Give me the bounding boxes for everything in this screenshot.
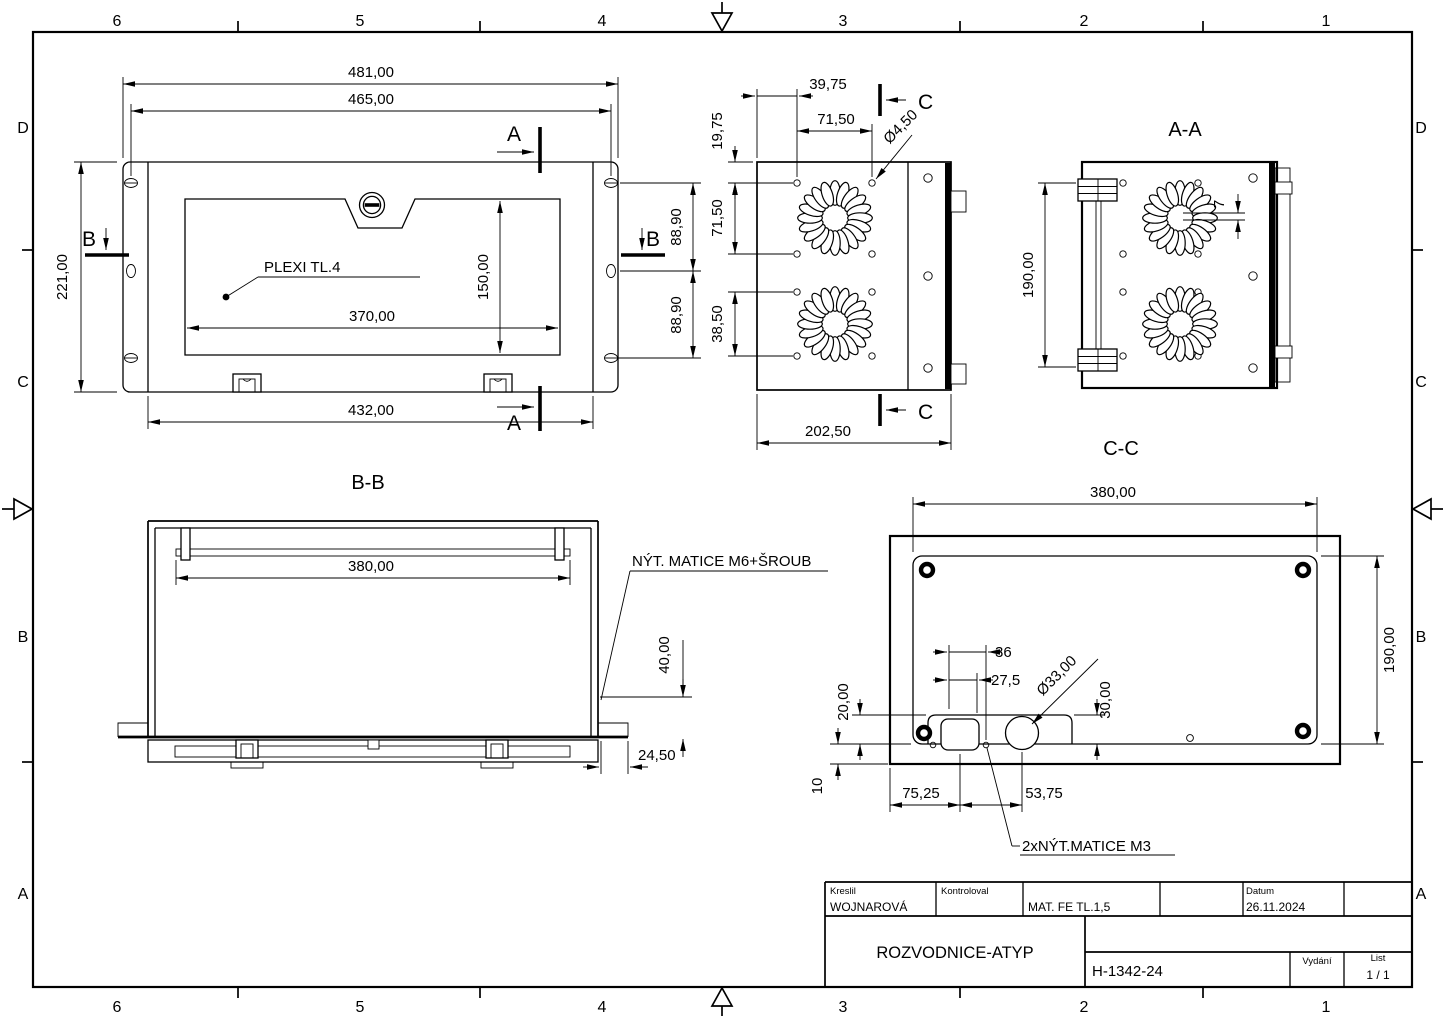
m3-rivet-hole	[983, 742, 989, 748]
cam-lock-icon	[360, 193, 385, 218]
list-label: List	[1371, 953, 1386, 964]
dim-front-body-width: 432,00	[148, 396, 593, 429]
svg-text:30,00: 30,00	[1097, 681, 1114, 719]
din-rail-top	[1078, 179, 1117, 201]
vydani-label: Vydání	[1302, 956, 1332, 967]
svg-text:71,50: 71,50	[817, 111, 855, 128]
dim-side-top-offset: 19,75	[709, 112, 793, 199]
dim-side-hole-span-h: 71,50	[797, 111, 872, 177]
section-mark-a-bottom: A	[497, 386, 540, 435]
svg-text:24,50: 24,50	[638, 747, 676, 764]
center-marker-right	[1413, 499, 1443, 519]
zone-bottom-6: 6	[113, 999, 122, 1016]
section-mark-c-bottom: C	[880, 394, 933, 426]
section-aa-view: A-A 190,00 7	[1020, 119, 1292, 388]
svg-text:190,00: 190,00	[1020, 252, 1037, 298]
svg-text:190,00: 190,00	[1381, 627, 1398, 673]
zone-right-d: D	[1415, 120, 1427, 137]
dim-cc-7525: 75,25	[890, 754, 960, 812]
dim-bb-rail-width: 380,00	[176, 558, 570, 585]
latch-clip	[484, 374, 512, 392]
datum-label: Datum	[1246, 886, 1274, 897]
drawing-title: ROZVODNICE-ATYP	[876, 944, 1033, 962]
dim-aa-height: 190,00	[1020, 183, 1076, 367]
zone-top-3: 3	[839, 13, 848, 30]
list-value: 1 / 1	[1366, 968, 1390, 982]
zone-left-a: A	[18, 886, 29, 903]
svg-text:Ø33,00: Ø33,00	[1033, 652, 1080, 699]
zone-right-a: A	[1416, 886, 1427, 903]
svg-text:C: C	[918, 401, 933, 424]
zone-top-2: 2	[1080, 13, 1089, 30]
svg-text:40,00: 40,00	[656, 636, 673, 674]
latch-clip	[233, 374, 261, 392]
dim-bb-rivet-height: 40,00	[600, 636, 692, 757]
svg-text:27,5: 27,5	[991, 672, 1020, 689]
kreslil-value: WOJNAROVÁ	[830, 899, 907, 914]
section-cc-view: C-C 380,00 190,00 36 27,5 20,00	[809, 438, 1398, 855]
latch-clip	[236, 740, 258, 758]
dim-side-hole-span-v: 71,50	[709, 183, 793, 254]
dim-window-height: 150,00	[475, 201, 500, 353]
section-aa-title: A-A	[1168, 119, 1202, 141]
section-mark-b-left: B	[82, 228, 129, 255]
dim-cc-30: 30,00	[1074, 681, 1114, 760]
datum-value: 26.11.2024	[1246, 900, 1305, 914]
svg-text:2xNÝT.MATICE M3: 2xNÝT.MATICE M3	[1022, 838, 1151, 855]
section-bb-view: B-B 380,00 NÝT. MATICE M6+ŠROUB 40,00 24…	[118, 472, 828, 774]
drawing-svg: 6 5 4 3 2 1 6 5 4 3 2 1 D C B A D C B A	[0, 0, 1445, 1018]
dim-side-lower-span: 38,50	[709, 292, 793, 356]
svg-text:Ø4,50: Ø4,50	[880, 106, 921, 147]
zone-left-c: C	[17, 374, 29, 391]
svg-text:481,00: 481,00	[348, 64, 394, 81]
zone-top-4: 4	[598, 13, 607, 30]
connector-cutout	[941, 719, 979, 750]
svg-text:150,00: 150,00	[475, 254, 492, 300]
center-marker-top	[712, 2, 732, 31]
zone-left-b: B	[18, 629, 29, 646]
dim-window-width: 370,00	[187, 308, 558, 328]
zone-bottom-3: 3	[839, 999, 848, 1016]
center-marker-bottom	[712, 988, 732, 1016]
zone-bottom-1: 1	[1322, 999, 1331, 1016]
svg-text:38,50: 38,50	[709, 305, 726, 343]
section-mark-a-top: A	[497, 123, 540, 173]
material-value: MAT. FE TL.1,5	[1028, 900, 1111, 914]
hanger-bolt	[555, 528, 564, 560]
dim-pitch-lower: 88,90	[668, 271, 693, 358]
note-rivet-m6: NÝT. MATICE M6+ŠROUB	[601, 553, 828, 700]
svg-text:370,00: 370,00	[349, 308, 395, 325]
section-mark-b-right: B	[621, 228, 665, 255]
dim-cc-10: 10	[809, 728, 888, 794]
svg-text:A: A	[507, 412, 521, 435]
latch-clip	[486, 740, 508, 758]
dim-cc-width: 380,00	[913, 484, 1317, 552]
drawing-frame: 6 5 4 3 2 1 6 5 4 3 2 1 D C B A D C B A	[2, 2, 1443, 1016]
zone-top-6: 6	[113, 13, 122, 30]
zone-left-d: D	[17, 120, 29, 137]
svg-text:20,00: 20,00	[835, 683, 852, 721]
kreslil-label: Kreslil	[830, 886, 856, 897]
svg-text:88,90: 88,90	[668, 208, 685, 246]
section-bb-title: B-B	[351, 472, 384, 494]
zone-top-1: 1	[1322, 13, 1331, 30]
svg-text:19,75: 19,75	[709, 112, 726, 150]
drawing-sheet: 6 5 4 3 2 1 6 5 4 3 2 1 D C B A D C B A	[0, 0, 1445, 1018]
svg-text:53,75: 53,75	[1025, 785, 1063, 802]
svg-text:221,00: 221,00	[54, 254, 71, 300]
svg-text:B: B	[646, 228, 660, 251]
zone-right-c: C	[1415, 374, 1427, 391]
zone-top-5: 5	[356, 13, 365, 30]
svg-text:C: C	[918, 91, 933, 114]
zone-bottom-2: 2	[1080, 999, 1089, 1016]
fan-grille	[1143, 181, 1218, 256]
section-cc-title: C-C	[1103, 438, 1139, 460]
svg-text:36: 36	[995, 644, 1012, 661]
svg-text:7: 7	[1211, 200, 1228, 208]
doc-number: H-1342-24	[1092, 963, 1163, 980]
svg-text:380,00: 380,00	[348, 558, 394, 575]
svg-text:71,50: 71,50	[709, 199, 726, 237]
front-view: 481,00 465,00 221,00 150,00 370,00 432,0…	[54, 64, 701, 435]
dim-cc-275: 27,5	[933, 672, 1020, 713]
zone-bottom-4: 4	[598, 999, 607, 1016]
svg-text:NÝT. MATICE M6+ŠROUB: NÝT. MATICE M6+ŠROUB	[632, 553, 811, 570]
din-rail-bottom	[1078, 349, 1117, 371]
svg-text:10: 10	[809, 778, 826, 795]
hanger-bolt	[181, 528, 190, 560]
plexi-label: PLEXI TL.4	[223, 259, 420, 300]
svg-text:202,50: 202,50	[805, 423, 851, 440]
kontroloval-label: Kontroloval	[941, 886, 989, 897]
dim-pitch-upper: 88,90	[618, 183, 701, 358]
svg-text:75,25: 75,25	[902, 785, 940, 802]
dim-cc-hole-dia: Ø33,00	[1032, 652, 1098, 724]
svg-text:39,75: 39,75	[809, 76, 847, 93]
fan-grille	[1143, 287, 1218, 362]
rail-strip	[176, 549, 570, 556]
svg-text:A: A	[507, 123, 521, 146]
fan-grille	[798, 181, 873, 256]
svg-text:465,00: 465,00	[348, 91, 394, 108]
side-view: 39,75 71,50 19,75 71,50 38,50 Ø4,50 202,…	[709, 76, 966, 450]
cable-gland-hole	[1006, 717, 1039, 750]
svg-text:380,00: 380,00	[1090, 484, 1136, 501]
svg-text:88,90: 88,90	[668, 296, 685, 334]
dim-side-hole-dia: Ø4,50	[876, 106, 921, 179]
fan-grille	[798, 287, 873, 362]
m3-rivet-hole	[930, 742, 936, 748]
svg-text:432,00: 432,00	[348, 402, 394, 419]
zone-right-b: B	[1416, 629, 1427, 646]
title-block: Kreslil WOJNAROVÁ Kontroloval MAT. FE TL…	[825, 882, 1412, 987]
dim-cc-20: 20,00	[830, 683, 926, 760]
svg-text:B: B	[82, 228, 96, 251]
zone-bottom-5: 5	[356, 999, 365, 1016]
svg-text:PLEXI TL.4: PLEXI TL.4	[264, 259, 340, 276]
center-marker-left	[2, 499, 32, 519]
dim-front-height: 221,00	[54, 162, 117, 392]
dim-cc-height: 190,00	[1321, 556, 1398, 744]
dim-cc-5375: 53,75	[960, 752, 1063, 812]
